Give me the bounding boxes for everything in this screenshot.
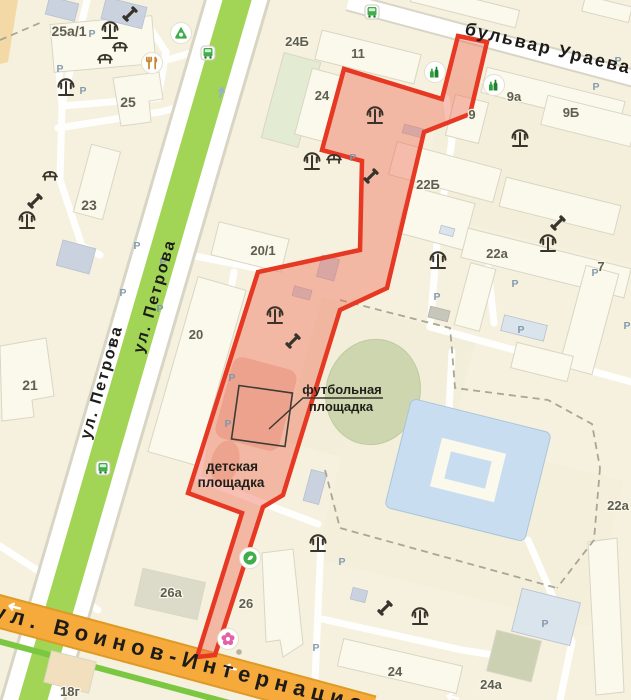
- parking-label: P: [349, 152, 356, 164]
- building-label: 24: [315, 88, 330, 103]
- building-label: 11: [351, 46, 365, 61]
- football-label-line1: футбольная: [302, 382, 382, 397]
- children-label-line1: детская: [206, 459, 258, 474]
- parking-label: P: [228, 372, 235, 384]
- parking-label: P: [511, 278, 518, 290]
- park-icon[interactable]: [171, 23, 192, 44]
- bottles-recycling-icon[interactable]: [425, 62, 446, 83]
- building-label: 26: [239, 596, 253, 611]
- parking-label: P: [224, 418, 231, 430]
- building-label: 24: [388, 664, 403, 679]
- building-label: 9а: [507, 89, 522, 104]
- football-label-line2: площадка: [309, 399, 374, 414]
- crossing-dot: [236, 649, 242, 655]
- building-label: 26а: [160, 585, 182, 600]
- building-label: 7: [597, 259, 604, 274]
- parking-label: P: [312, 642, 319, 654]
- building-label: 25: [120, 94, 136, 110]
- parking-label: P: [433, 291, 440, 303]
- parking-label: P: [56, 63, 63, 75]
- parking-label: P: [623, 320, 630, 332]
- flower-shop-icon[interactable]: [218, 629, 239, 650]
- map-canvas[interactable]: P P P P P P P P P P P P P P P P P P P P …: [0, 0, 631, 700]
- building-label: 20/1: [250, 243, 275, 258]
- building-label: 25а/1: [51, 23, 86, 39]
- building-label: 22а: [607, 498, 629, 513]
- bottles-recycling-icon[interactable]: [484, 75, 505, 96]
- children-label-line2: площадка: [198, 475, 265, 490]
- building-label: 20: [189, 327, 203, 342]
- map-viewport[interactable]: P P P P P P P P P P P P P P P P P P P P …: [0, 0, 631, 700]
- parking-label: P: [119, 287, 126, 299]
- building-label: 22а: [486, 246, 508, 261]
- building-label: 23: [81, 197, 97, 213]
- parking-label: P: [88, 28, 95, 40]
- building-label: 24а: [480, 677, 502, 692]
- building-label: 22Б: [416, 177, 440, 192]
- recycling-icon[interactable]: [240, 548, 261, 569]
- parking-label: P: [592, 81, 599, 93]
- bus-stop-icon[interactable]: [365, 5, 379, 19]
- building-label: 21: [22, 377, 38, 393]
- building-label: 18г: [60, 684, 80, 699]
- restaurant-icon[interactable]: [142, 53, 163, 74]
- building-label: 9Б: [563, 105, 580, 120]
- bus-stop-icon[interactable]: [201, 46, 215, 60]
- parking-label: P: [541, 618, 548, 630]
- parking-label: P: [79, 85, 86, 97]
- parking-label: P: [338, 556, 345, 568]
- building-label: 9: [468, 107, 475, 122]
- parking-label: P: [517, 324, 524, 336]
- building-label: 24Б: [285, 34, 309, 49]
- bus-stop-icon[interactable]: [96, 461, 110, 475]
- parking-label: P: [133, 240, 140, 252]
